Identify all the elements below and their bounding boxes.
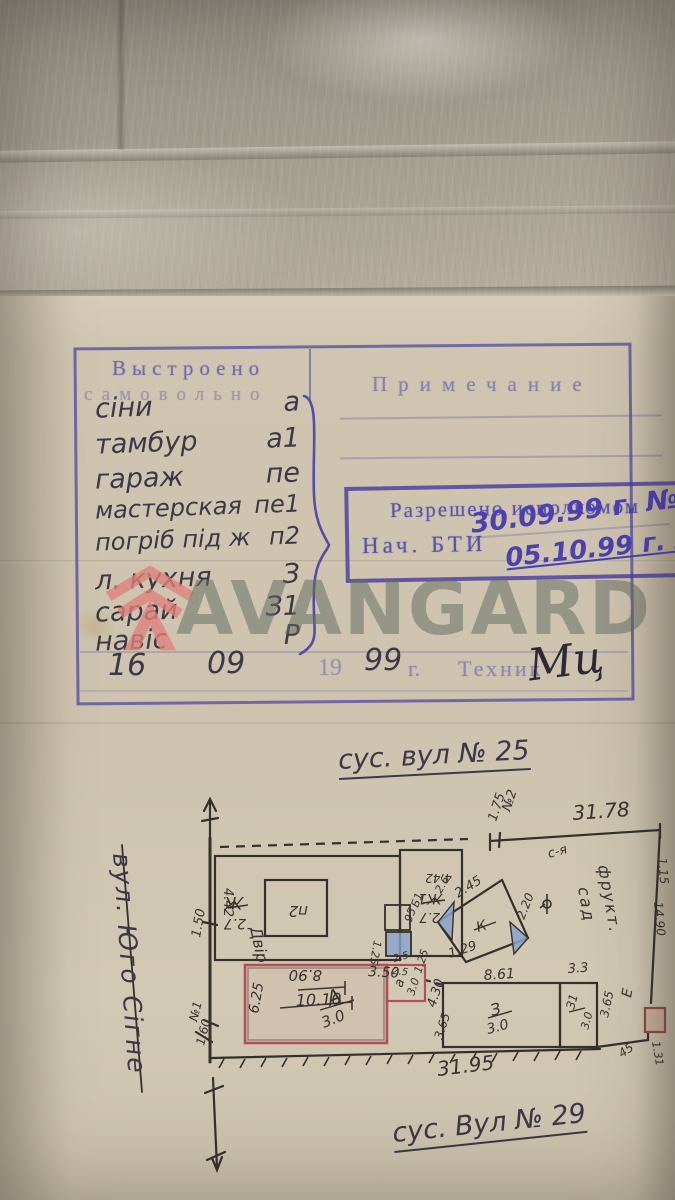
dim-label: 1.50 <box>189 908 209 939</box>
plan-note: с-я <box>546 842 569 862</box>
watermark-text: AVANGARD <box>176 566 652 652</box>
dim-label: 1.25 <box>411 948 431 975</box>
garden-label: сад <box>574 885 599 923</box>
room-label: Е <box>619 987 636 999</box>
dim-label: 14.90 <box>651 901 668 937</box>
dim-label: 8.90 <box>289 966 322 984</box>
room-label: З1 <box>563 992 580 1010</box>
room-label: п2 <box>289 902 308 920</box>
dim-label: 3.65 <box>597 990 616 1019</box>
dim-label: 1.31 <box>649 1040 666 1066</box>
dim-label: 31.78 <box>572 797 631 825</box>
dim-label: 8.61 <box>483 966 515 984</box>
room-label: 3.0 <box>404 976 422 997</box>
dim-label: 1.25 <box>367 939 384 965</box>
room-label: 3.0 <box>485 1017 511 1038</box>
document-photo: Выстроено самовольно Примечание сіни а т… <box>0 0 675 1200</box>
permit-stamp-signer: Нач. БТИ <box>362 531 487 559</box>
form-rule-line <box>80 690 628 692</box>
dim-label: 2.45 <box>452 873 485 901</box>
dim-label: 3.3 <box>567 961 589 977</box>
dim-label: 31.95 <box>436 1050 496 1081</box>
room-name: гараж <box>95 461 185 495</box>
yard-label: Двір <box>246 924 272 965</box>
built-table-header-col1: Выстроено <box>112 356 265 381</box>
date-century: 19 <box>318 655 342 682</box>
dim-label: 2.20 <box>514 891 537 921</box>
room-name: погріб під ж <box>95 523 251 556</box>
date-year-suffix: г. <box>408 656 420 682</box>
room-name: мастерская <box>95 491 243 524</box>
room-label: 2.7 <box>224 915 246 931</box>
room-label: 3.0 <box>578 1011 595 1031</box>
dim-label: 3.65 <box>432 1011 454 1041</box>
dim-label: .95 <box>401 906 419 927</box>
paper-crease <box>116 0 126 150</box>
dim-label: 2.5 <box>392 966 409 978</box>
paper-fold-line <box>0 722 675 724</box>
room-label: 2.7 <box>419 909 440 924</box>
room-name: сіни <box>95 392 154 425</box>
structure-label: К <box>474 917 489 936</box>
room-name: тамбур <box>95 426 198 461</box>
garden-label: фрукт. <box>594 863 625 935</box>
dim-label: 4.42 <box>220 888 235 917</box>
dim-label: 1.15 <box>655 857 671 885</box>
built-table-header-col2: Примечание <box>372 372 593 397</box>
